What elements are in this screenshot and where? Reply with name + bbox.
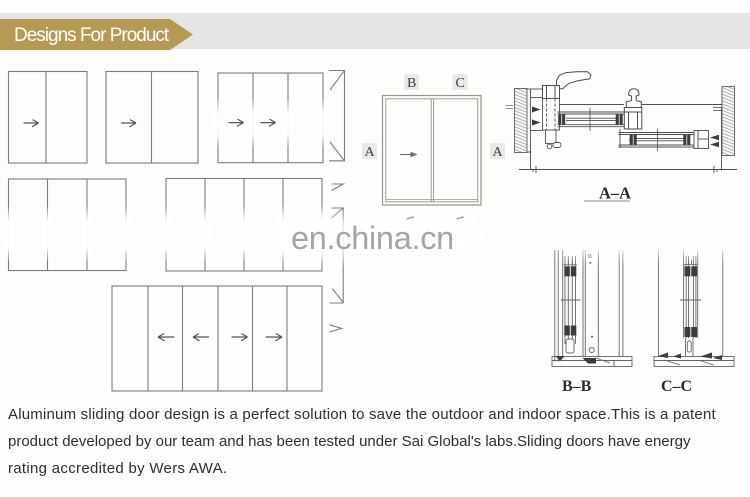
svg-text:B–B: B–B bbox=[562, 378, 592, 395]
svg-text:A: A bbox=[365, 145, 376, 160]
svg-text:B: B bbox=[407, 76, 416, 91]
svg-text:A–A: A–A bbox=[599, 184, 631, 203]
svg-text:C–C: C–C bbox=[661, 378, 692, 395]
svg-text:C: C bbox=[456, 76, 465, 91]
svg-text:A: A bbox=[493, 145, 504, 160]
